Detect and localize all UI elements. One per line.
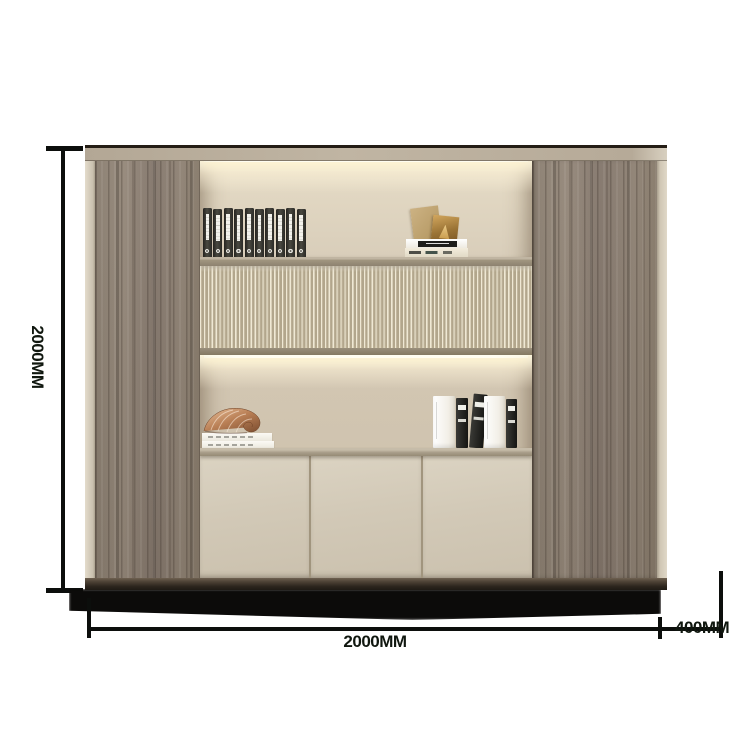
upper-shelf-board [200,257,532,266]
stacked-book-dark-band [406,239,467,248]
cabinet-top-board [85,148,667,161]
binder [286,208,295,258]
cabinet-plinth [85,578,667,590]
right-wood-door [532,159,657,578]
floor-shadow [69,589,661,620]
book [456,398,468,448]
cabinet-left-edge-panel [85,159,95,578]
center-shelf-niche [200,159,532,578]
book [484,396,505,448]
binder [203,208,212,258]
width-dimension-label: 2000MM [275,633,475,652]
white-book-stack [202,433,274,449]
binder [265,208,274,258]
book [506,399,517,448]
height-dimension-label: 2000MM [26,297,46,417]
binder-row [203,208,311,258]
fluted-tambour-panel [200,266,532,348]
product-scene: 2000MM [0,0,750,750]
cabinet [85,145,667,590]
depth-dimension-label: 400MM [675,619,729,638]
width-dimension-left-ext [87,598,91,638]
led-strip-middle [204,355,528,358]
left-wood-door [95,159,200,578]
fluted-bottom-rail [200,348,532,355]
binder [255,209,264,258]
led-glow-top [200,159,532,193]
binder [245,208,254,258]
height-dimension-line [61,148,65,590]
led-glow-middle [200,355,532,389]
cabinet-door [309,456,420,578]
binder [297,209,306,258]
binder [234,209,243,258]
binder [224,208,233,258]
stacked-book-cream [405,248,468,257]
nautilus-shell-icon [203,406,263,435]
width-dimension-line [87,627,723,631]
cabinet-door [421,456,532,578]
book [433,396,455,448]
cabinet-right-edge-panel [657,159,667,578]
cabinet-door [200,456,309,578]
width-dimension-right-tick [658,617,662,639]
nautilus-shell-decor [203,406,263,435]
door-row [200,456,532,578]
height-dimension-top-cap [46,146,83,151]
binder [276,209,285,258]
standing-books-group [433,396,521,448]
binder [213,209,222,258]
counter-board [200,448,532,456]
